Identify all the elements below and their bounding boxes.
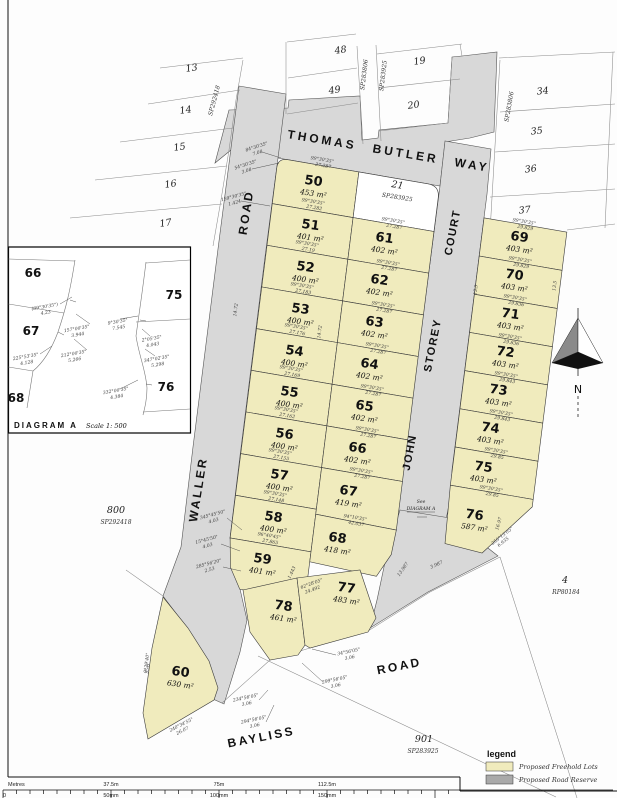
scale-label-75m: 75m [214, 782, 225, 788]
inset-lot-number: 67 [23, 324, 40, 338]
legend-label-freehold: Proposed Freehold Lots [518, 763, 598, 771]
adjacent-lot-number: 35 [530, 125, 543, 137]
adjacent-lot-number: 901 [415, 734, 433, 745]
adjacent-lot-number: 36 [524, 163, 537, 175]
scale-bar: Metres 37.5m 75m 112.5m 0 50mm 100mm 150… [3, 782, 613, 798]
adjacent-lot-number: 15 [173, 141, 187, 154]
see-diagram-note-line1: See [417, 499, 426, 505]
adjacent-lot-number: 19 [413, 55, 427, 68]
legend-swatch-freehold [486, 762, 513, 771]
plan-number: SP283806 [503, 91, 515, 123]
see-diagram-note-line2: DIAGRAM A [406, 506, 436, 512]
adjacent-lot-number: 13 [185, 62, 199, 75]
scale-label-37-5m: 37.5m [103, 782, 119, 788]
scale-label-metres: Metres [8, 782, 25, 788]
plan-number: SP283806 [359, 59, 370, 91]
adjacent-lot-number: 14 [179, 104, 193, 117]
inset-lot-number: 66 [25, 266, 42, 280]
plan-number: SP292418 [100, 519, 131, 526]
adjacent-lot-number: 20 [406, 99, 420, 112]
survey-plan-sheet: THOMAS BUTLER WAY WALLER ROAD JOHN STORE… [0, 0, 617, 798]
north-label: N [574, 383, 582, 396]
adjacent-lot-number: 48 [333, 44, 347, 57]
bearing-text: 13.5 [551, 280, 558, 291]
distance-text: 35.6 [144, 663, 151, 674]
adjacent-lot-number: 34 [536, 85, 549, 97]
inset-title: DIAGRAM A [14, 421, 78, 430]
inset-lot-number: 76 [158, 380, 175, 394]
scale-label-50mm: 50mm [103, 793, 119, 798]
adjacent-lot-number: 37 [518, 204, 532, 216]
plan-number: RP80184 [551, 589, 580, 596]
adjacent-lot-number: 800 [107, 505, 125, 516]
scale-label-150mm: 150mm [318, 793, 337, 798]
adjacent-lot-number: 21 [390, 179, 405, 192]
bearing-text: 13.5 [472, 284, 479, 295]
plan-map: THOMAS BUTLER WAY WALLER ROAD JOHN STORE… [0, 0, 617, 798]
scale-label-112-5m: 112.5m [318, 782, 336, 788]
legend-label-road: Proposed Road Reserve [518, 776, 597, 784]
legend-title: legend [487, 749, 516, 759]
adjacent-lot-number: 16 [164, 178, 178, 191]
plan-number: SP292418 [207, 85, 222, 117]
lot-77-polygon [297, 570, 376, 648]
road-label-bayliss: BAYLISS [226, 724, 296, 751]
north-arrow: N [552, 308, 603, 420]
inset-diagram: 6675676876 (89°30'35")4.23157°00'35"3.94… [8, 247, 191, 433]
adjacent-lot-number: 49 [327, 84, 341, 97]
plan-number: SP283925 [407, 748, 438, 755]
road-label-bayliss-road-word: ROAD [376, 655, 423, 677]
legend-swatch-road [486, 775, 513, 784]
inset-lot-number: 68 [8, 391, 25, 405]
inset-scale: Scale 1: 500 [86, 422, 127, 430]
adjacent-lot-number: 4 [561, 575, 568, 586]
inset-lot-number: 75 [166, 288, 183, 302]
legend: legend Proposed Freehold Lots Proposed R… [486, 749, 598, 784]
adjacent-lot-number: 17 [159, 217, 173, 230]
scale-label-100mm: 100mm [210, 793, 229, 798]
scale-label-0: 0 [3, 793, 6, 798]
